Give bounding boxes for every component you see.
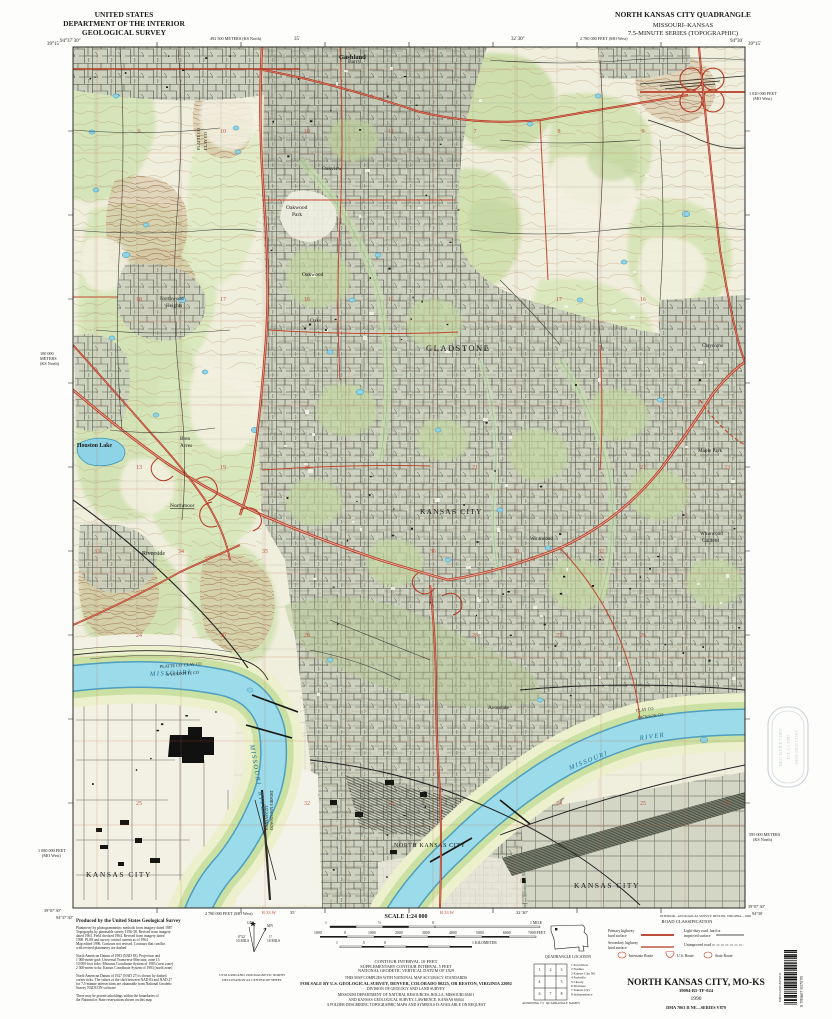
svg-text:19: 19 xyxy=(220,465,226,471)
svg-text:36: 36 xyxy=(430,549,436,555)
svg-text:PLATTE CO: PLATTE CO xyxy=(196,128,201,150)
svg-text:4000: 4000 xyxy=(449,931,457,935)
svg-text:17: 17 xyxy=(220,297,226,303)
svg-text:23: 23 xyxy=(388,801,394,807)
svg-text:1 MILE: 1 MILE xyxy=(530,921,543,925)
svg-text:Houston Lake: Houston Lake xyxy=(77,443,112,449)
svg-text:Northmoor: Northmoor xyxy=(170,503,195,509)
svg-text:1: 1 xyxy=(539,968,541,972)
svg-text:35: 35 xyxy=(262,549,268,555)
svg-text:32: 32 xyxy=(598,549,604,555)
svg-text:Park: Park xyxy=(292,212,302,218)
svg-text:13: 13 xyxy=(136,465,142,471)
svg-text:Heights: Heights xyxy=(166,303,182,309)
svg-text:Maple Park: Maple Park xyxy=(698,448,722,454)
svg-text:KANSAS CITY: KANSAS CITY xyxy=(420,507,483,516)
svg-text:8: 8 xyxy=(558,129,561,135)
svg-text:5000: 5000 xyxy=(476,931,484,935)
svg-text:Oakwood: Oakwood xyxy=(302,272,324,278)
svg-text:3: 3 xyxy=(561,968,563,972)
svg-text:2: 2 xyxy=(550,968,552,972)
svg-text:2 780 000 FEET (MO West): 2 780 000 FEET (MO West) xyxy=(580,36,628,41)
svg-text:MISSOURI–KANSAS: MISSOURI–KANSAS xyxy=(653,22,714,29)
svg-text:Winnwood: Winnwood xyxy=(700,531,723,537)
svg-text:(MO West): (MO West) xyxy=(753,96,772,101)
svg-text:25: 25 xyxy=(136,801,142,807)
svg-text:DECLINATION AT CENTER OF SHEET: DECLINATION AT CENTER OF SHEET xyxy=(222,978,283,982)
svg-text:492 500 METERS (KS North): 492 500 METERS (KS North) xyxy=(210,36,262,41)
svg-text:NATIONAL GEODETIC VERTICAL DAT: NATIONAL GEODETIC VERTICAL DATUM OF 1929 xyxy=(358,968,454,973)
svg-text:ROAD CLASSIFICATION: ROAD CLASSIFICATION xyxy=(662,919,714,924)
svg-text:(MO West): (MO West) xyxy=(42,853,61,858)
svg-text:16: 16 xyxy=(640,297,646,303)
svg-text:MN: MN xyxy=(267,924,273,928)
svg-text:hard surface: hard surface xyxy=(608,946,627,950)
svg-text:Bren: Bren xyxy=(180,436,190,442)
svg-text:4: 4 xyxy=(539,980,541,984)
svg-text:1 KILOMETER: 1 KILOMETER xyxy=(472,941,497,945)
svg-text:DOWNTOWN AIRPORT: DOWNTOWN AIRPORT xyxy=(270,789,274,830)
svg-text:26: 26 xyxy=(640,633,646,639)
svg-text:NORTH KANSAS CITY, MO-KS: NORTH KANSAS CITY, MO-KS xyxy=(627,978,765,988)
svg-text:Secondary highway: Secondary highway xyxy=(608,941,638,945)
svg-text:Unimproved road: Unimproved road xyxy=(684,943,711,947)
svg-text:22: 22 xyxy=(640,465,646,471)
svg-text:35ʾ: 35ʾ xyxy=(294,36,301,42)
svg-text:94°37ʾ30″: 94°37ʾ30″ xyxy=(56,915,74,920)
svg-text:2 780 000 FEET (MO West): 2 780 000 FEET (MO West) xyxy=(205,911,253,916)
svg-text:Oaks: Oaks xyxy=(310,318,321,324)
svg-text:29: 29 xyxy=(304,633,310,639)
svg-text:GEOLOGICAL SURVEY: GEOLOGICAL SURVEY xyxy=(82,28,167,37)
svg-text:.5: .5 xyxy=(362,941,365,945)
svg-text:Barry: Barry xyxy=(348,59,361,65)
svg-text:17: 17 xyxy=(556,297,562,303)
svg-text:Northwood: Northwood xyxy=(160,296,184,302)
svg-text:18: 18 xyxy=(136,297,142,303)
svg-text:23: 23 xyxy=(724,465,730,471)
svg-text:9: 9 xyxy=(138,129,141,135)
svg-text:94°30ʾ: 94°30ʾ xyxy=(752,911,763,916)
svg-text:State Route: State Route xyxy=(715,954,733,958)
svg-text:the National or State reservat: the National or State reservations shown… xyxy=(76,998,152,1002)
svg-text:Avondale: Avondale xyxy=(488,705,510,711)
svg-text:Acres: Acres xyxy=(180,443,192,449)
svg-text:8 Independence: 8 Independence xyxy=(571,992,593,996)
svg-text:ADJOINING 7.5ʾ QUADRANGLE NAME: ADJOINING 7.5ʾ QUADRANGLE NAMES xyxy=(522,1000,580,1005)
svg-text:34: 34 xyxy=(178,549,184,555)
svg-text:Claycomo: Claycomo xyxy=(702,343,724,349)
svg-text:with revised planimetry are da: with revised planimetry are dashed xyxy=(76,946,126,950)
svg-text:7000 FEET: 7000 FEET xyxy=(528,931,546,935)
svg-text:Oakview: Oakview xyxy=(322,166,342,172)
svg-text:Gardens: Gardens xyxy=(702,538,719,544)
svg-text:FOR SALE BY U.S. GEOLOGICAL SU: FOR SALE BY U.S. GEOLOGICAL SURVEY, DENV… xyxy=(300,981,512,986)
svg-text:1000: 1000 xyxy=(314,931,322,935)
svg-text:11: 11 xyxy=(388,129,394,135)
svg-text:39°15ʾ: 39°15ʾ xyxy=(748,41,762,47)
svg-text:10: 10 xyxy=(220,129,226,135)
svg-text:NORTH KANSAS CITY QUADRANGLE: NORTH KANSAS CITY QUADRANGLE xyxy=(615,10,751,19)
svg-text:RECʾD FILE COPY: RECʾD FILE COPY xyxy=(778,727,783,766)
svg-text:Oakwood: Oakwood xyxy=(286,205,308,211)
svg-text:SCALE 1:24 000: SCALE 1:24 000 xyxy=(384,914,427,920)
svg-text:Winnwood: Winnwood xyxy=(530,536,553,542)
svg-text:35ʾ: 35ʾ xyxy=(290,910,296,915)
svg-text:DEPARTMENT OF THE INTERIOR: DEPARTMENT OF THE INTERIOR xyxy=(63,19,185,28)
svg-text:A FOLDER DESCRIBING TOPOGRAPHI: A FOLDER DESCRIBING TOPOGRAPHIC MAPS AND… xyxy=(327,1003,486,1007)
svg-text:24: 24 xyxy=(556,801,562,807)
svg-text:16: 16 xyxy=(304,297,310,303)
svg-text:7.5-MINUTE SERIES (TOPOGRAPHIC: 7.5-MINUTE SERIES (TOPOGRAPHIC) xyxy=(628,30,738,37)
svg-text:9: 9 xyxy=(642,129,645,135)
svg-text:QUADRANGLE LOCATION: QUADRANGLE LOCATION xyxy=(545,955,592,959)
svg-text:32: 32 xyxy=(304,801,310,807)
svg-text:0: 0 xyxy=(344,931,346,935)
svg-text:6: 6 xyxy=(539,992,541,996)
svg-text:30: 30 xyxy=(220,633,226,639)
svg-text:3000: 3000 xyxy=(422,931,430,935)
svg-text:NORTH KANSAS CITY: NORTH KANSAS CITY xyxy=(394,843,466,849)
svg-text:UTM GRID AND 1996 MAGNETIC NOR: UTM GRID AND 1996 MAGNETIC NORTH xyxy=(219,973,285,977)
svg-text:27: 27 xyxy=(556,633,562,639)
svg-text:improved surface: improved surface xyxy=(684,934,711,938)
svg-text:(KS North): (KS North) xyxy=(40,361,60,366)
svg-text:94°30ʾ: 94°30ʾ xyxy=(730,38,744,44)
svg-text:DIVISION OF GEOLOGY AND LAND S: DIVISION OF GEOLOGY AND LAND SURVEY xyxy=(367,987,445,991)
svg-text:Produced by the United States: Produced by the United States Geological… xyxy=(76,919,181,924)
svg-text:R 33 W: R 33 W xyxy=(262,910,277,915)
svg-text:10 MILS: 10 MILS xyxy=(236,939,249,943)
svg-text:39°07ʾ30″: 39°07ʾ30″ xyxy=(748,904,766,909)
svg-text:1: 1 xyxy=(325,921,327,925)
svg-text:R 33 W: R 33 W xyxy=(440,910,455,915)
svg-text:25: 25 xyxy=(640,801,646,807)
svg-text:21: 21 xyxy=(472,465,478,471)
svg-text:2 500-meter ticks: Kansas Coor: 2 500-meter ticks: Kansas Coordinate Sys… xyxy=(76,966,173,970)
svg-text:8: 8 xyxy=(561,992,563,996)
svg-text:9 780607 837078: 9 780607 837078 xyxy=(799,975,804,1007)
svg-text:10: 10 xyxy=(304,129,310,135)
svg-text:18 MILS: 18 MILS xyxy=(267,939,280,943)
svg-text:28: 28 xyxy=(472,633,478,639)
svg-text:UNITED STATES: UNITED STATES xyxy=(95,10,154,19)
svg-text:5: 5 xyxy=(561,980,563,984)
svg-text:GLADSTONE: GLADSTONE xyxy=(426,343,490,353)
svg-text:Riverside: Riverside xyxy=(142,551,165,557)
svg-text:CLAY CO: CLAY CO xyxy=(203,132,208,150)
svg-text:(KS North): (KS North) xyxy=(753,837,773,842)
svg-text:1: 1 xyxy=(336,941,338,945)
svg-text:7: 7 xyxy=(474,129,477,135)
svg-text:33: 33 xyxy=(94,549,100,555)
svg-text:7: 7 xyxy=(550,992,552,996)
svg-text:THIS MAP COMPLIES WITH NATIONA: THIS MAP COMPLIES WITH NATIONAL MAP ACCU… xyxy=(345,976,467,980)
svg-text:NEW FILE COPY: NEW FILE COPY xyxy=(794,729,799,764)
svg-text:KANSAS CITY: KANSAS CITY xyxy=(265,805,269,830)
svg-text:0: 0 xyxy=(432,921,434,925)
svg-text:hard surface: hard surface xyxy=(608,934,627,938)
svg-text:39°07ʾ30″: 39°07ʾ30″ xyxy=(44,908,62,913)
svg-text:32ʾ30″: 32ʾ30″ xyxy=(516,910,528,915)
svg-text:1990: 1990 xyxy=(691,996,702,1002)
svg-text:24: 24 xyxy=(136,633,142,639)
svg-text:U.S. Route: U.S. Route xyxy=(677,954,694,958)
svg-text:DMA 7063 II NE—SERIES V879: DMA 7063 II NE—SERIES V879 xyxy=(666,1005,726,1010)
svg-text:31: 31 xyxy=(514,549,520,555)
svg-text:0: 0 xyxy=(384,941,386,945)
svg-text:94°37ʾ30″: 94°37ʾ30″ xyxy=(60,38,81,44)
svg-text:KANSAS CITY: KANSAS CITY xyxy=(574,881,640,890)
svg-text:6000: 6000 xyxy=(503,931,511,935)
svg-text:1000: 1000 xyxy=(368,931,376,935)
svg-text:2000: 2000 xyxy=(395,931,403,935)
svg-text:39094-B5-TF-024: 39094-B5-TF-024 xyxy=(679,988,714,993)
svg-text:15: 15 xyxy=(388,297,394,303)
svg-text:JUL 3 1 1997: JUL 3 1 1997 xyxy=(786,734,791,760)
svg-text:32ʾ30″: 32ʾ30″ xyxy=(511,36,525,42)
svg-text:KANSAS CITY: KANSAS CITY xyxy=(86,870,152,879)
svg-text:Interstate Route: Interstate Route xyxy=(629,954,653,958)
svg-text:Survey NADCON software: Survey NADCON software xyxy=(76,986,116,990)
svg-text:Primary highway: Primary highway xyxy=(608,929,634,933)
svg-text:39°15ʾ: 39°15ʾ xyxy=(47,41,61,47)
svg-text:27: 27 xyxy=(724,801,730,807)
svg-text:ISBN 0-607-83707-8: ISBN 0-607-83707-8 xyxy=(778,973,782,1002)
svg-text:½: ½ xyxy=(378,921,381,925)
